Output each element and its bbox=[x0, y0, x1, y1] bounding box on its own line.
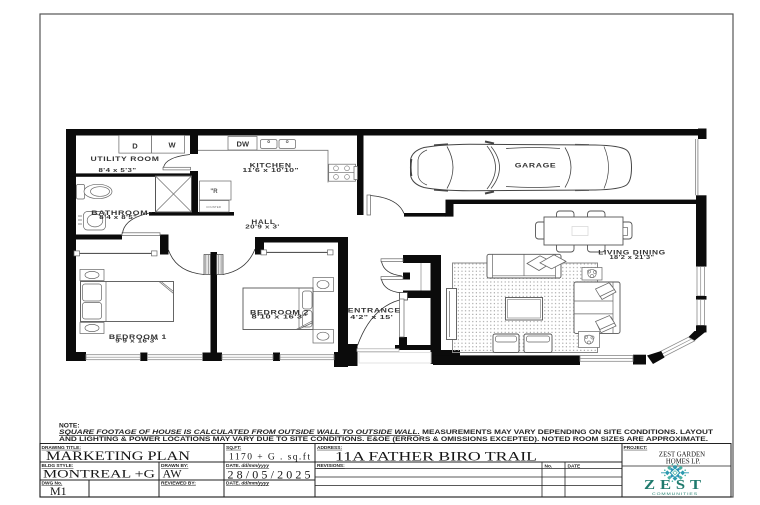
svg-text:ZEST: ZEST bbox=[644, 477, 706, 492]
svg-text:8'10 x 16'3": 8'10 x 16'3" bbox=[252, 314, 308, 320]
svg-text:D: D bbox=[132, 142, 138, 151]
svg-text:REVISIONS:: REVISIONS: bbox=[317, 463, 345, 469]
svg-text:20'9 x 3': 20'9 x 3' bbox=[245, 225, 280, 231]
svg-text:PROJECT:: PROJECT: bbox=[624, 445, 648, 451]
svg-text:No.: No. bbox=[545, 463, 553, 469]
svg-text:8'4 x 5'3": 8'4 x 5'3" bbox=[99, 168, 137, 174]
svg-text:REVIEWED BY:: REVIEWED BY: bbox=[161, 481, 196, 487]
svg-text:MONTREAL +G: MONTREAL +G bbox=[43, 466, 155, 480]
svg-text:GARAGE: GARAGE bbox=[515, 163, 557, 170]
svg-text:DATE. dd/mm/yyyy: DATE. dd/mm/yyyy bbox=[226, 481, 269, 487]
svg-text:DW: DW bbox=[237, 139, 250, 148]
svg-text:UTILITY ROOM: UTILITY ROOM bbox=[91, 156, 160, 163]
svg-text:18'2 x 21'3": 18'2 x 21'3" bbox=[610, 255, 655, 261]
svg-text:9'9 x 16'3": 9'9 x 16'3" bbox=[115, 339, 159, 345]
svg-text:1170 + G . sq.ft: 1170 + G . sq.ft bbox=[229, 452, 310, 463]
svg-text:"R: "R bbox=[210, 189, 218, 195]
svg-text:HOMES LP.: HOMES LP. bbox=[666, 459, 701, 466]
svg-text:W: W bbox=[168, 141, 176, 150]
svg-text:8'4 x 8'5": 8'4 x 8'5" bbox=[99, 215, 137, 221]
svg-text:MARKETING PLAN: MARKETING PLAN bbox=[46, 448, 191, 463]
svg-text:DATE: DATE bbox=[568, 463, 582, 469]
svg-text:COUNTER: COUNTER bbox=[206, 205, 222, 209]
svg-text:AND LIGHTING & POWER LOCATIONS: AND LIGHTING & POWER LOCATIONS MAY VARY … bbox=[59, 436, 708, 443]
svg-text:ENTRANCE: ENTRANCE bbox=[348, 308, 401, 315]
svg-text:4'2" x 15': 4'2" x 15' bbox=[350, 315, 394, 321]
svg-text:11'6 x 10'10": 11'6 x 10'10" bbox=[243, 168, 300, 174]
svg-text:ZEST GARDEN: ZEST GARDEN bbox=[659, 452, 705, 459]
svg-text:11A FATHER BIRO TRAIL: 11A FATHER BIRO TRAIL bbox=[335, 449, 537, 464]
svg-text:COMMUNITIES: COMMUNITIES bbox=[652, 491, 698, 496]
svg-text:M1: M1 bbox=[50, 484, 67, 498]
svg-text:SQ.FT:: SQ.FT: bbox=[226, 445, 242, 451]
svg-text:AW: AW bbox=[163, 466, 183, 480]
